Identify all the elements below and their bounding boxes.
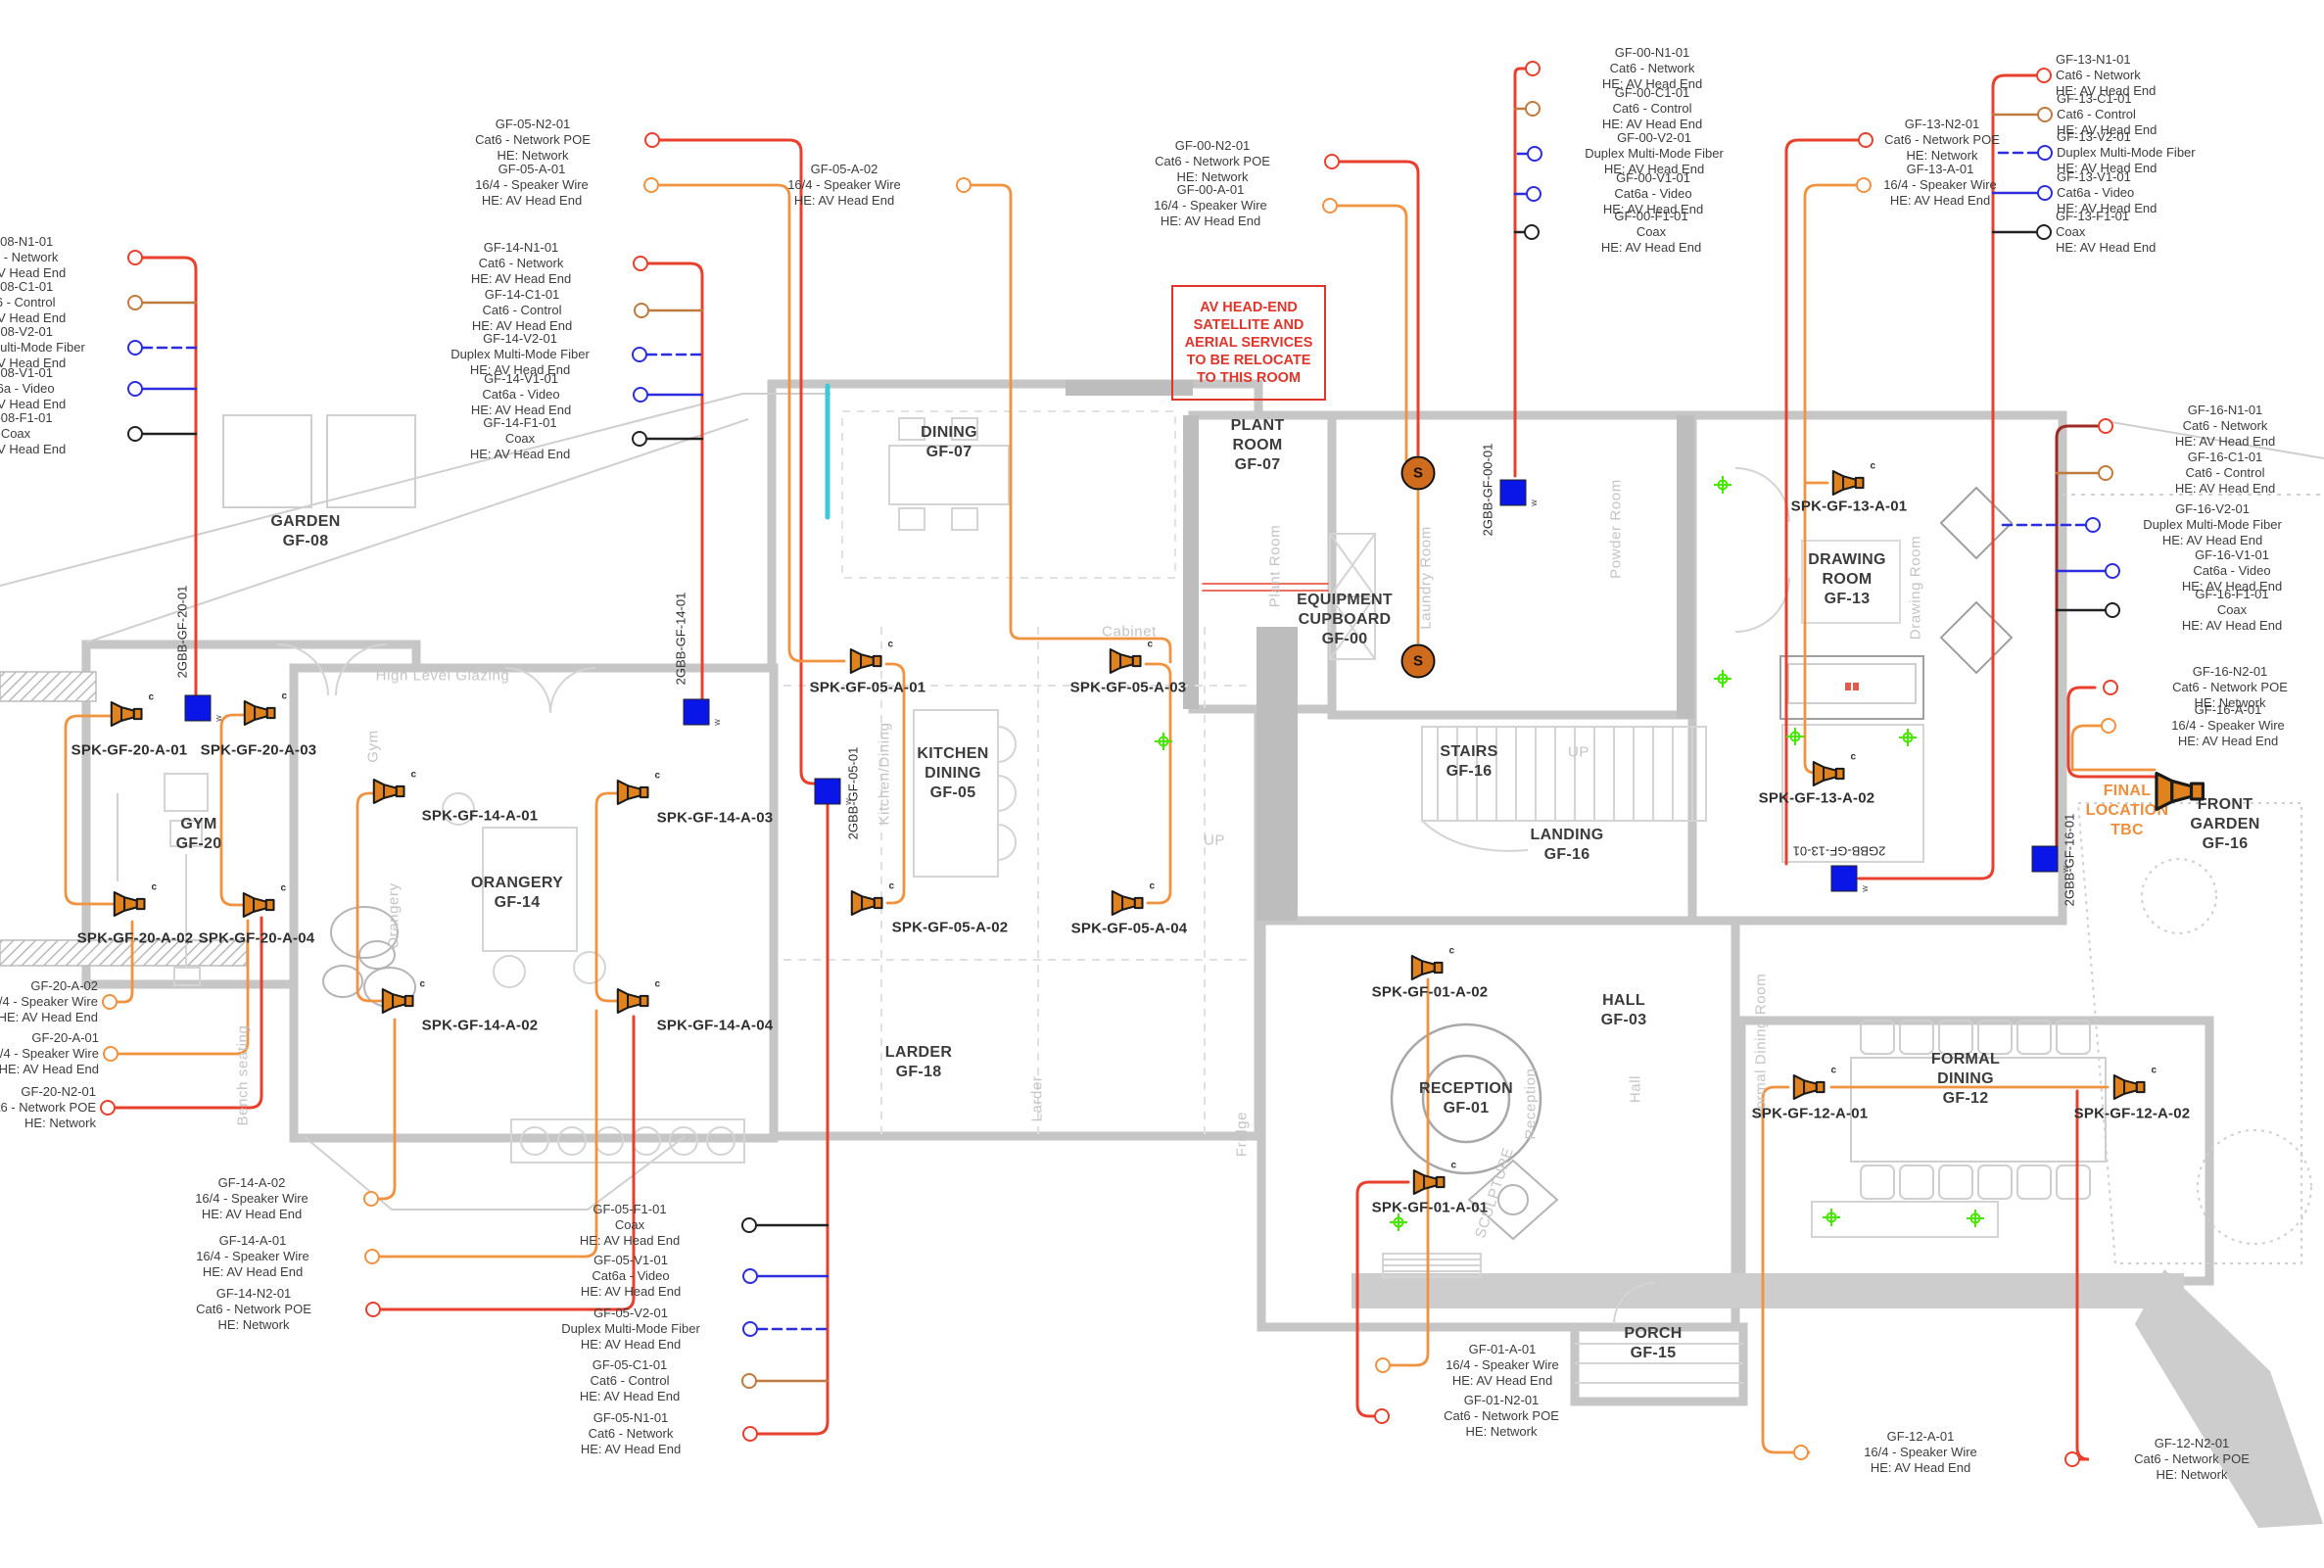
ceiling-mount-mark: c [1448, 946, 1454, 957]
callout-destination: HE: AV Head End [145, 1264, 360, 1280]
room-label-line: LARDER [885, 1043, 952, 1063]
cable-endpoint-icon [1524, 224, 1540, 240]
ceiling-mount-mark: c [280, 883, 286, 894]
room-tag: Larder [1029, 1076, 1046, 1122]
room-tag: Drawing Room [1908, 536, 1924, 640]
room-tag: UP [1204, 832, 1225, 849]
ceiling-mount-mark: c [1147, 640, 1153, 650]
callout-id: GF-14-V2-01 [412, 331, 628, 347]
keypad-icon-2GBB-GF-14-01 [684, 699, 710, 726]
callout-id: GF-13-A-01 [1875, 162, 2005, 177]
callout-cable-type: Cat6 - Network [1544, 61, 1760, 76]
callout-destination: HE: AV Head End [2105, 533, 2320, 548]
callout-text: GF-14-A-0216/4 - Speaker WireHE: AV Head… [144, 1175, 359, 1222]
speaker-label: SPK-GF-12-A-01 [1752, 1106, 1869, 1122]
callout-id: GF-13-N1-01 [2056, 52, 2271, 68]
room-label-line: PLANT [1231, 416, 1285, 436]
speaker-label: SPK-GF-14-A-01 [422, 808, 539, 825]
ceiling-mount-mark: c [151, 882, 157, 893]
callout-id: GF-20-A-01 [0, 1030, 99, 1046]
callout-id: GF-14-N1-01 [413, 240, 629, 256]
callout-cable-type: Cat6 - Network [523, 1426, 738, 1442]
room-label-line: GARDEN [270, 512, 340, 532]
speaker-label: SPK-GF-14-A-02 [422, 1018, 539, 1034]
callout-text: GF-08-F1-01CoaxHE: AV Head End [0, 410, 123, 457]
room-label-line: PORCH [1624, 1324, 1682, 1344]
room-label-line: GF-01 [1419, 1099, 1513, 1118]
ceiling-mount-mark: c [1850, 752, 1856, 763]
cable-endpoint-icon [2036, 68, 2052, 83]
ceiling-mount-mark: c [654, 979, 660, 990]
room-tag: Cabinet [1102, 624, 1157, 641]
ceiling-mount-mark: c [654, 771, 660, 782]
speaker-label: SPK-GF-05-A-03 [1070, 680, 1187, 696]
cable-endpoint-icon [2101, 718, 2116, 734]
callout-cable-type: Cat6 - Network [2117, 418, 2324, 434]
room-label-line: GF-07 [921, 443, 977, 462]
callout-cable-type: Cat6a - Video [2124, 563, 2324, 579]
callout-cable-type: Duplex Multi-Mode Fiber [2105, 517, 2320, 533]
callout-destination: HE: AV Head End [0, 1010, 98, 1025]
callout-text: GF-05-A-0216/4 - Speaker WireHE: AV Head… [736, 162, 952, 209]
room-label-line: DINING [917, 764, 988, 784]
callout-text: GF-05-C1-01Cat6 - ControlHE: AV Head End [522, 1357, 737, 1404]
speaker-label: SPK-GF-20-A-01 [71, 742, 188, 759]
callout-destination: HE: AV Head End [2117, 434, 2324, 450]
speaker-icon: c [1811, 760, 1848, 788]
callout-destination: HE: AV Head End [1813, 1460, 2028, 1476]
room-label-line: GF-08 [270, 532, 340, 551]
cable-endpoint-icon [1856, 177, 1872, 193]
callout-destination: HE: AV Head End [2120, 734, 2324, 749]
cable-endpoint-icon [127, 295, 143, 310]
callout-cable-type: Cat6 - Control [522, 1373, 737, 1389]
callout-cable-type: 16/4 - Speaker Wire [1395, 1357, 1610, 1373]
speaker-icon: c [112, 890, 149, 919]
cable-endpoint-icon [2085, 517, 2101, 533]
cable-endpoint-icon [364, 1249, 380, 1264]
callout-cable-type: 16/4 - Speaker Wire [1103, 198, 1318, 214]
callout-text: GF-20-A-0216/4 - Speaker WireHE: AV Head… [0, 978, 98, 1025]
callout-text: GF-14-F1-01CoaxHE: AV Head End [412, 415, 628, 462]
callout-cable-type: Cat6 - Control [1544, 101, 1760, 117]
ceiling-position-marker [1898, 728, 1918, 747]
callout-cable-type: 16/4 - Speaker Wire [424, 177, 640, 193]
callout-destination: HE: AV Head End [523, 1284, 738, 1300]
room-label-line: HALL [1601, 991, 1647, 1011]
callout-id: GF-20-N2-01 [0, 1084, 96, 1100]
cable-endpoint-icon [632, 431, 647, 447]
keypad-icon-2GBB-GF-05-01 [815, 779, 841, 805]
callout-text: GF-05-F1-01CoaxHE: AV Head End [522, 1202, 737, 1249]
room-label-orangery-gf-14: ORANGERYGF-14 [471, 874, 563, 913]
speaker-label: SPK-GF-14-A-03 [657, 810, 774, 827]
cable-endpoint-icon [633, 256, 648, 271]
callout-cable-type: Cat6 - Control [414, 303, 630, 318]
callout-text: GF-08-C1-01Cat6 - ControlHE: AV Head End [0, 279, 123, 326]
callout-text: GF-14-N2-01Cat6 - Network POEHE: Network [146, 1286, 361, 1333]
ceiling-mount-mark: c [1830, 1066, 1836, 1076]
callout-text: GF-01-A-0116/4 - Speaker WireHE: AV Head… [1395, 1342, 1610, 1389]
callout-id: GF-00-N1-01 [1544, 45, 1760, 61]
callout-text: GF-00-A-0116/4 - Speaker WireHE: AV Head… [1103, 182, 1318, 229]
room-tag: Reception [1523, 1069, 1540, 1140]
callout-cable-type: Cat6 - Network POE [0, 1100, 96, 1116]
cable-endpoint-icon [741, 1217, 757, 1233]
speaker-label: SPK-GF-05-A-02 [892, 920, 1009, 936]
room-label-line: DRAWING [1808, 550, 1885, 570]
callout-destination: HE: AV Head End [523, 1442, 738, 1457]
ceiling-mount-mark: c [419, 979, 425, 990]
speaker-icon: c [1409, 954, 1447, 982]
cable-endpoint-icon [127, 426, 143, 442]
callout-cable-type: Cat6 - Network POE [425, 132, 640, 148]
speaker-icon: c [242, 699, 279, 728]
callout-text: GF-16-A-0116/4 - Speaker WireHE: AV Head… [2120, 702, 2324, 749]
callout-id: GF-08-V1-01 [0, 365, 123, 381]
callout-id: GF-16-C1-01 [2117, 450, 2324, 465]
callout-id: GF-00-N2-01 [1105, 138, 1320, 154]
callout-id: GF-12-A-01 [1813, 1429, 2028, 1445]
cable-endpoint-icon [1525, 61, 1541, 76]
room-label-line: GF-12 [1931, 1089, 2000, 1109]
callout-cable-type: Coax [0, 426, 123, 442]
ceiling-position-marker [1966, 1209, 1985, 1228]
callout-cable-type: 16/4 - Speaker Wire [0, 1046, 99, 1062]
room-label-line: GF-14 [471, 893, 563, 913]
callout-destination: HE: AV Head End [1875, 193, 2005, 209]
keypad-label: 2GBB-GF-05-01 [846, 747, 861, 840]
note-line: TO BE RELOCATE [1177, 352, 1320, 369]
keypad-label: 2GBB-GF-14-01 [674, 593, 688, 686]
callout-id: GF-14-C1-01 [414, 287, 630, 303]
ceiling-mount-mark: c [410, 770, 416, 781]
room-label-dining-gf-07: DININGGF-07 [921, 423, 977, 462]
callout-id: GF-08-N1-01 [0, 234, 123, 250]
callout-id: GF-12-N2-01 [2084, 1436, 2300, 1451]
keypad-label: 2GBB-GF-20-01 [175, 586, 190, 679]
cable-endpoint-icon [2105, 563, 2120, 579]
callout-cable-type: Coax [1543, 224, 1759, 240]
callout-text: GF-20-A-0116/4 - Speaker WireHE: AV Head… [0, 1030, 99, 1077]
speaker-icon: c [1830, 469, 1868, 498]
callout-cable-type: Cat6 - Network [0, 250, 123, 265]
room-tag: High Level Glazing [376, 668, 510, 685]
room-label-line: GF-18 [885, 1063, 952, 1082]
callout-text: GF-05-N2-01Cat6 - Network POEHE: Network [425, 117, 640, 164]
room-label-plant-room-gf-07: PLANTROOMGF-07 [1231, 416, 1285, 475]
callout-text: GF-13-F1-01CoaxHE: AV Head End [2056, 209, 2271, 256]
speaker-icon: c [380, 987, 417, 1016]
callout-text: GF-08-V1-01Cat6a - VideoHE: AV Head End [0, 365, 123, 412]
cable-endpoint-icon [127, 250, 143, 265]
ceiling-position-marker [1713, 669, 1732, 689]
keypad-label: 2GBB-GF-16-01 [2063, 814, 2077, 907]
callout-cable-type: Cat6 - Network POE [1105, 154, 1320, 169]
callout-cable-type: Duplex Multi-Mode Fiber [0, 340, 123, 356]
room-label-stairs-gf-16: STAIRSGF-16 [1440, 742, 1497, 782]
callout-destination: HE: AV Head End [0, 442, 123, 457]
callout-cable-type: Cat6 - Network [413, 256, 629, 271]
cable-endpoint-icon [956, 177, 972, 193]
room-label-line: GF-07 [1231, 455, 1285, 475]
speaker-label: SPK-GF-14-A-04 [657, 1018, 774, 1034]
callout-cable-type: 16/4 - Speaker Wire [144, 1191, 359, 1207]
callout-text: GF-05-V1-01Cat6a - VideoHE: AV Head End [523, 1253, 738, 1300]
callout-destination: HE: AV Head End [412, 447, 628, 462]
speaker-icon: c [371, 778, 408, 806]
ceiling-mount-mark: c [148, 692, 154, 703]
callout-cable-type: Cat6a - Video [0, 381, 123, 397]
callout-cable-type: Coax [522, 1217, 737, 1233]
cable-endpoint-icon [2037, 145, 2053, 161]
room-label-line: TBC [2086, 821, 2169, 840]
callout-cable-type: Cat6a - Video [2057, 185, 2272, 201]
callout-id: GF-01-N2-01 [1394, 1393, 1609, 1408]
callout-destination: HE: AV Head End [523, 1337, 738, 1353]
callout-cable-type: Coax [2124, 602, 2324, 618]
cable-endpoint-icon [1858, 132, 1873, 148]
callout-text: GF-14-V1-01Cat6a - VideoHE: AV Head End [413, 371, 629, 418]
callout-destination: HE: AV Head End [522, 1233, 737, 1249]
callout-text: GF-08-N1-01Cat6 - NetworkHE: AV Head End [0, 234, 123, 281]
room-tag: Laundry Room [1418, 526, 1435, 630]
callout-cable-type: 16/4 - Speaker Wire [1875, 177, 2005, 193]
callout-id: GF-05-A-02 [736, 162, 952, 177]
callout-text: GF-14-N1-01Cat6 - NetworkHE: AV Head End [413, 240, 629, 287]
keypad-label: 2GBB-GF-00-01 [1481, 444, 1495, 537]
note-line: TO THIS ROOM [1177, 369, 1320, 387]
callout-id: GF-14-F1-01 [412, 415, 628, 431]
cable-endpoint-icon [365, 1302, 381, 1317]
cable-endpoint-icon [1375, 1357, 1391, 1373]
room-label-hall-gf-03: HALLGF-03 [1601, 991, 1647, 1030]
room-tag: Kitchen/Dining [877, 722, 893, 825]
callout-text: GF-12-N2-01Cat6 - Network POEHE: Network [2084, 1436, 2300, 1483]
callout-cable-type: Cat6 - Network POE [146, 1302, 361, 1317]
room-label-line: GYM [176, 815, 222, 834]
cable-endpoint-icon [1374, 1408, 1390, 1424]
note-line: SATELLITE AND [1177, 316, 1320, 334]
room-label-line: CUPBOARD [1297, 610, 1393, 630]
callout-text: GF-13-A-0116/4 - Speaker WireHE: AV Head… [1875, 162, 2005, 209]
callout-id: GF-00-V2-01 [1546, 130, 1762, 146]
callout-cable-type: 16/4 - Speaker Wire [1813, 1445, 2028, 1460]
room-label-line: RECEPTION [1419, 1079, 1513, 1099]
callout-text: GF-13-N2-01Cat6 - Network POEHE: Network [1877, 117, 2007, 164]
cable-endpoint-icon [2098, 418, 2113, 434]
callout-cable-type: Duplex Multi-Mode Fiber [412, 347, 628, 362]
cable-endpoint-icon [632, 347, 647, 362]
callout-id: GF-00-V1-01 [1545, 170, 1761, 186]
callout-id: GF-08-C1-01 [0, 279, 123, 295]
callout-id: GF-20-A-02 [0, 978, 98, 994]
speaker-icon: c [241, 891, 278, 920]
speaker-label: SPK-GF-01-A-02 [1372, 984, 1489, 1001]
callout-destination: HE: AV Head End [424, 193, 640, 209]
speaker-label: SPK-GF-20-A-04 [199, 930, 315, 947]
callout-destination: HE: AV Head End [2056, 240, 2271, 256]
room-label-line: LANDING [1531, 826, 1604, 845]
callout-id: GF-00-F1-01 [1543, 209, 1759, 224]
callout-text: GF-16-C1-01Cat6 - ControlHE: AV Head End [2117, 450, 2324, 497]
callout-id: GF-14-A-01 [145, 1233, 360, 1249]
room-label-gym-gf-20: GYMGF-20 [176, 815, 222, 854]
cable-endpoint-icon [742, 1268, 758, 1284]
cable-endpoint-icon [2037, 107, 2053, 122]
callout-id: GF-05-A-01 [424, 162, 640, 177]
ceiling-position-marker [1713, 475, 1732, 495]
keypad-label: 2GBB-GF-13-01 [1793, 844, 1886, 859]
callout-id: GF-00-A-01 [1103, 182, 1318, 198]
callout-id: GF-13-F1-01 [2056, 209, 2271, 224]
callout-destination: HE: AV Head End [413, 271, 629, 287]
room-label-line: GF-20 [176, 834, 222, 854]
callout-destination: HE: AV Head End [1395, 1373, 1610, 1389]
callout-destination: HE: Network [1394, 1424, 1609, 1440]
cable-endpoint-icon [2103, 680, 2118, 695]
ceiling-mount-mark: c [281, 691, 287, 702]
note-line: AV HEAD-END [1177, 299, 1320, 316]
room-label-garden-gf-08: GARDENGF-08 [270, 512, 340, 551]
callout-text: GF-12-A-0116/4 - Speaker WireHE: AV Head… [1813, 1429, 2028, 1476]
ceiling-position-marker [1154, 732, 1173, 751]
callout-text: GF-16-V2-01Duplex Multi-Mode FiberHE: AV… [2105, 501, 2320, 548]
callout-text: GF-14-A-0116/4 - Speaker WireHE: AV Head… [145, 1233, 360, 1280]
speaker-label: SPK-GF-20-A-03 [201, 742, 317, 759]
cable-endpoint-icon [2105, 602, 2120, 618]
speaker-icon: c [109, 700, 146, 729]
callout-cable-type: Coax [2056, 224, 2271, 240]
callout-id: GF-16-N2-01 [2122, 664, 2324, 680]
cable-endpoint-icon [634, 303, 649, 318]
room-label-line: GF-15 [1624, 1344, 1682, 1363]
room-tag: Orangery [386, 882, 403, 948]
ceiling-mount-mark: c [2151, 1066, 2157, 1076]
cable-endpoint-icon [2064, 1451, 2080, 1467]
speaker-label: SPK-GF-05-A-04 [1071, 921, 1188, 937]
keypad-icon-2GBB-GF-16-01 [2032, 846, 2059, 873]
callout-id: GF-05-N2-01 [425, 117, 640, 132]
callout-id: GF-05-N1-01 [523, 1410, 738, 1426]
callout-cable-type: Cat6 - Network POE [1877, 132, 2007, 148]
room-label-line: GF-03 [1601, 1011, 1647, 1030]
cable-endpoint-icon [102, 994, 118, 1010]
room-tag: Powder Room [1608, 479, 1625, 579]
callout-destination: HE: Network [0, 1116, 96, 1131]
cable-endpoint-icon [742, 1321, 758, 1337]
speaker-icon: c [1791, 1073, 1828, 1102]
callout-id: GF-14-N2-01 [146, 1286, 361, 1302]
cable-endpoint-icon [103, 1046, 119, 1062]
cable-endpoint-icon [127, 381, 143, 397]
callout-id: GF-16-V2-01 [2105, 501, 2320, 517]
room-label-line: STAIRS [1440, 742, 1497, 762]
callout-id: GF-05-V1-01 [523, 1253, 738, 1268]
ceiling-mount-mark: c [1450, 1161, 1456, 1171]
room-label-line: GF-13 [1808, 590, 1885, 609]
relocate-note: AV HEAD-ENDSATELLITE ANDAERIAL SERVICEST… [1171, 285, 1326, 401]
room-tag: Plant Room [1267, 525, 1284, 607]
s-device-icon: S [1401, 644, 1436, 679]
ceiling-mount-mark: c [888, 881, 894, 892]
speaker-icon: c [1411, 1168, 1448, 1197]
callout-text: GF-16-F1-01CoaxHE: AV Head End [2124, 587, 2324, 634]
callout-id: GF-13-V1-01 [2057, 169, 2272, 185]
callout-cable-type: 16/4 - Speaker Wire [2120, 718, 2324, 734]
callout-cable-type: 16/4 - Speaker Wire [145, 1249, 360, 1264]
callout-id: GF-14-V1-01 [413, 371, 629, 387]
cable-endpoint-icon [1525, 101, 1541, 117]
callout-destination: HE: AV Head End [736, 193, 952, 209]
speaker-icon [2153, 770, 2209, 814]
room-label-line: GF-05 [917, 784, 988, 803]
speaker-icon: c [849, 889, 886, 918]
room-tag: UP [1568, 744, 1589, 761]
room-label-formal-dining-gf-12: FORMALDININGGF-12 [1931, 1050, 2000, 1109]
callout-cable-type: Cat6 - Control [2117, 465, 2324, 481]
callout-text: GF-05-A-0116/4 - Speaker WireHE: AV Head… [424, 162, 640, 209]
ceiling-position-marker [1822, 1208, 1841, 1227]
room-label-line: ROOM [1231, 436, 1285, 455]
speaker-icon: c [2111, 1073, 2149, 1102]
callout-text: GF-16-N1-01Cat6 - NetworkHE: AV Head End [2117, 403, 2324, 450]
callout-cable-type: Duplex Multi-Mode Fiber [2057, 145, 2272, 161]
speaker-icon: c [615, 987, 652, 1016]
room-tag: Hall [1628, 1075, 1644, 1103]
callout-id: GF-16-A-01 [2120, 702, 2324, 718]
speaker-label: SPK-GF-05-A-01 [810, 680, 926, 696]
room-tag: Fridge [1234, 1112, 1251, 1157]
callout-destination: HE: AV Head End [1543, 240, 1759, 256]
cable-endpoint-icon [1324, 154, 1340, 169]
room-label-equipment-cupboard-gf-00: EQUIPMENTCUPBOARDGF-00 [1297, 591, 1393, 649]
speaker-icon: c [615, 779, 652, 807]
callout-cable-type: Cat6 - Network POE [1394, 1408, 1609, 1424]
room-label-line: DINING [921, 423, 977, 443]
room-label-drawing-room-gf-13: DRAWINGROOMGF-13 [1808, 550, 1885, 609]
callout-id: GF-16-V1-01 [2124, 547, 2324, 563]
callout-text: GF-14-C1-01Cat6 - ControlHE: AV Head End [414, 287, 630, 334]
keypad-icon-2GBB-GF-20-01 [185, 695, 212, 722]
callout-cable-type: 16/4 - Speaker Wire [0, 994, 98, 1010]
callout-cable-type: Cat6 - Network [2056, 68, 2271, 83]
callout-text: GF-01-N2-01Cat6 - Network POEHE: Network [1394, 1393, 1609, 1440]
callout-text: GF-05-N1-01Cat6 - NetworkHE: AV Head End [523, 1410, 738, 1457]
callout-text: GF-05-V2-01Duplex Multi-Mode FiberHE: AV… [523, 1306, 738, 1353]
callout-text: GF-00-F1-01CoaxHE: AV Head End [1543, 209, 1759, 256]
speaker-icon: c [848, 647, 885, 676]
speaker-label: SPK-GF-01-A-01 [1372, 1200, 1489, 1216]
callout-id: GF-13-V2-01 [2057, 129, 2272, 145]
cable-endpoint-icon [100, 1100, 116, 1116]
room-label-line: DINING [1931, 1069, 2000, 1089]
cable-endpoint-icon [1322, 198, 1338, 214]
callout-cable-type: 16/4 - Speaker Wire [736, 177, 952, 193]
callout-destination: HE: AV Head End [2124, 618, 2324, 634]
keypad-icon-2GBB-GF-13-01 [1831, 866, 1858, 892]
speaker-label: SPK-GF-12-A-02 [2074, 1106, 2191, 1122]
cable-endpoint-icon [1526, 186, 1541, 202]
callout-id: GF-05-C1-01 [522, 1357, 737, 1373]
room-label-line: GF-16 [1440, 762, 1497, 782]
callout-cable-type: Coax [412, 431, 628, 447]
ceiling-mount-mark: c [1870, 461, 1875, 472]
callout-destination: HE: AV Head End [0, 1062, 99, 1077]
room-tag: Formal Dining Room [1753, 974, 1770, 1118]
callout-id: GF-16-F1-01 [2124, 587, 2324, 602]
callout-cable-type: Duplex Multi-Mode Fiber [523, 1321, 738, 1337]
